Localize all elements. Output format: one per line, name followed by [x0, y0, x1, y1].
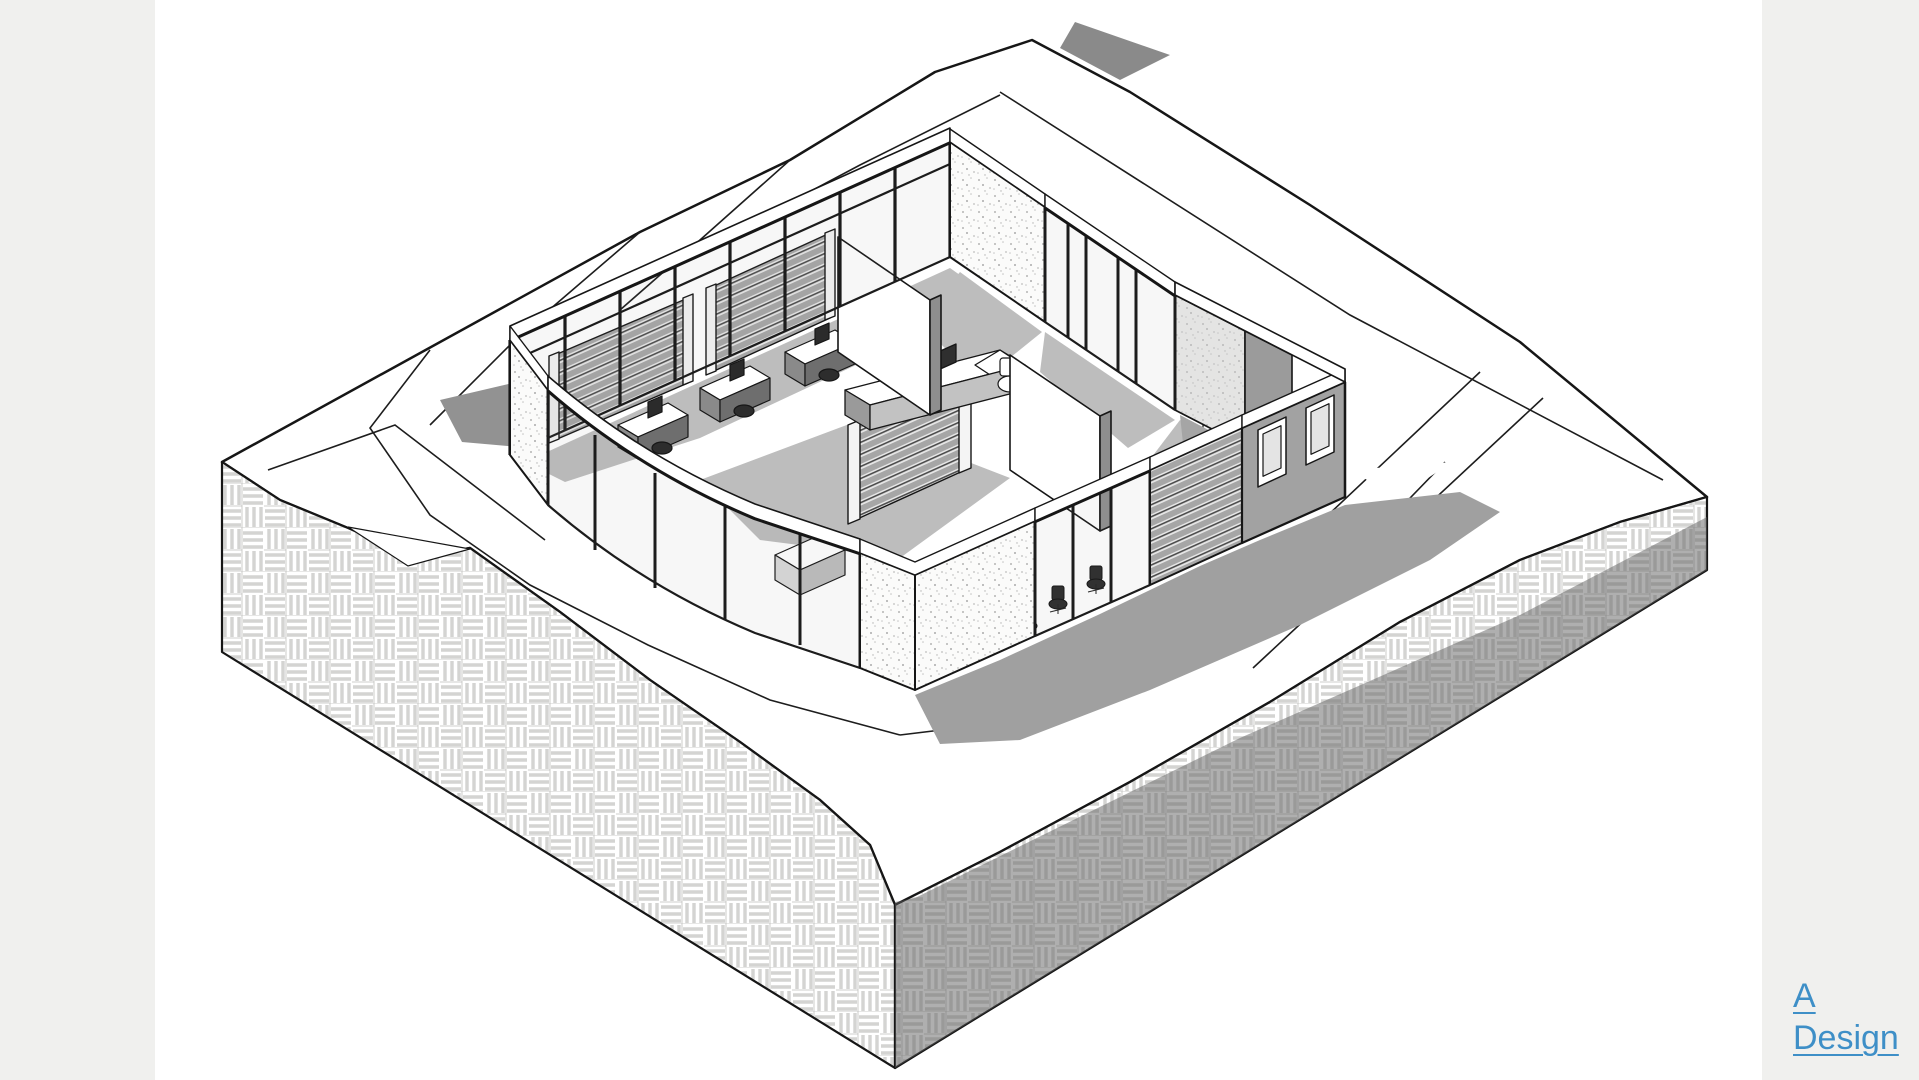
window	[1306, 395, 1334, 465]
axonometric-illustration	[0, 0, 1919, 1080]
page: A Design	[0, 0, 1919, 1080]
window	[1258, 417, 1286, 487]
brand-line-1[interactable]: A	[1793, 976, 1899, 1016]
brand-line-2[interactable]: Design	[1793, 1018, 1899, 1058]
brand-link[interactable]: A Design	[1793, 976, 1899, 1058]
